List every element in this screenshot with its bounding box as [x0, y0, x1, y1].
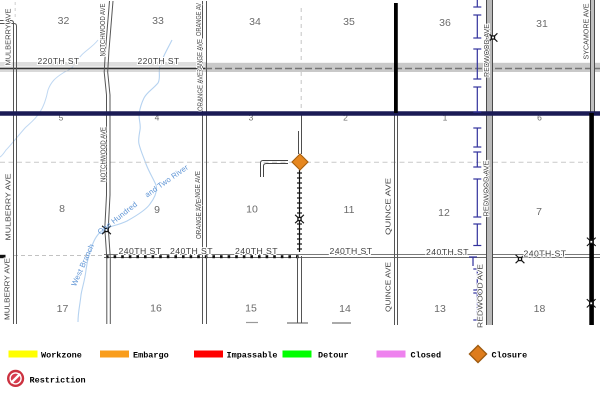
svg-text:QUINCE AVE: QUINCE AVE	[386, 178, 393, 235]
svg-text:36: 36	[439, 17, 451, 29]
svg-text:16: 16	[150, 303, 162, 315]
svg-text:8: 8	[59, 203, 65, 215]
svg-text:240TH ST: 240TH ST	[524, 250, 567, 259]
svg-text:240TH ST: 240TH ST	[119, 247, 162, 256]
svg-text:33: 33	[152, 15, 164, 27]
svg-text:SYCAMORE AVE: SYCAMORE AVE	[584, 3, 591, 59]
svg-text:MULBERRY AVE: MULBERRY AVE	[6, 173, 13, 240]
svg-text:12: 12	[438, 207, 450, 219]
svg-text:32: 32	[58, 15, 70, 27]
svg-text:REDWOOD AVE: REDWOOD AVE	[484, 24, 491, 77]
svg-text:NOTCHWOOD AVE: NOTCHWOOD AVE	[101, 127, 108, 182]
svg-text:9: 9	[154, 204, 160, 216]
svg-text:15: 15	[245, 303, 257, 315]
svg-text:7: 7	[536, 206, 542, 218]
svg-text:240TH ST: 240TH ST	[170, 247, 213, 256]
svg-text:Embargo: Embargo	[133, 351, 169, 361]
svg-text:18: 18	[534, 303, 546, 315]
svg-text:13: 13	[434, 303, 446, 315]
svg-text:31: 31	[536, 18, 548, 30]
svg-text:REDWOOD AVE: REDWOOD AVE	[484, 160, 491, 216]
svg-text:240TH ST: 240TH ST	[426, 248, 469, 257]
svg-text:240TH ST: 240TH ST	[330, 247, 373, 256]
svg-text:Closed: Closed	[411, 351, 442, 361]
svg-text:MULBERRY AVE: MULBERRY AVE	[6, 8, 13, 65]
svg-text:Closure: Closure	[492, 351, 528, 361]
svg-text:NOTCHWOOD AVE: NOTCHWOOD AVE	[100, 3, 107, 56]
svg-text:Detour: Detour	[318, 351, 349, 361]
svg-text:11: 11	[344, 204, 355, 216]
svg-text:17: 17	[57, 303, 69, 315]
svg-text:QUINCE AVE: QUINCE AVE	[386, 262, 393, 312]
svg-text:ORANGE AVE: ORANGE AVE	[198, 72, 205, 111]
svg-text:240TH ST: 240TH ST	[235, 247, 278, 256]
svg-text:Workzone: Workzone	[41, 351, 82, 361]
svg-text:ORANGE AV: ORANGE AV	[196, 3, 203, 36]
svg-text:220TH ST: 220TH ST	[38, 57, 80, 66]
svg-text:220TH ST: 220TH ST	[138, 57, 180, 66]
svg-text:ORANGE AVE: ORANGE AVE	[196, 199, 203, 239]
svg-text:REDWOOD AVE: REDWOOD AVE	[478, 264, 485, 328]
svg-text:Restriction: Restriction	[30, 375, 86, 385]
svg-text:35: 35	[343, 16, 355, 28]
svg-text:10: 10	[246, 204, 258, 216]
svg-text:Impassable: Impassable	[227, 351, 278, 361]
svg-text:14: 14	[339, 303, 351, 315]
svg-text:34: 34	[249, 16, 261, 28]
svg-text:MULBERRY AVE: MULBERRY AVE	[5, 258, 12, 320]
